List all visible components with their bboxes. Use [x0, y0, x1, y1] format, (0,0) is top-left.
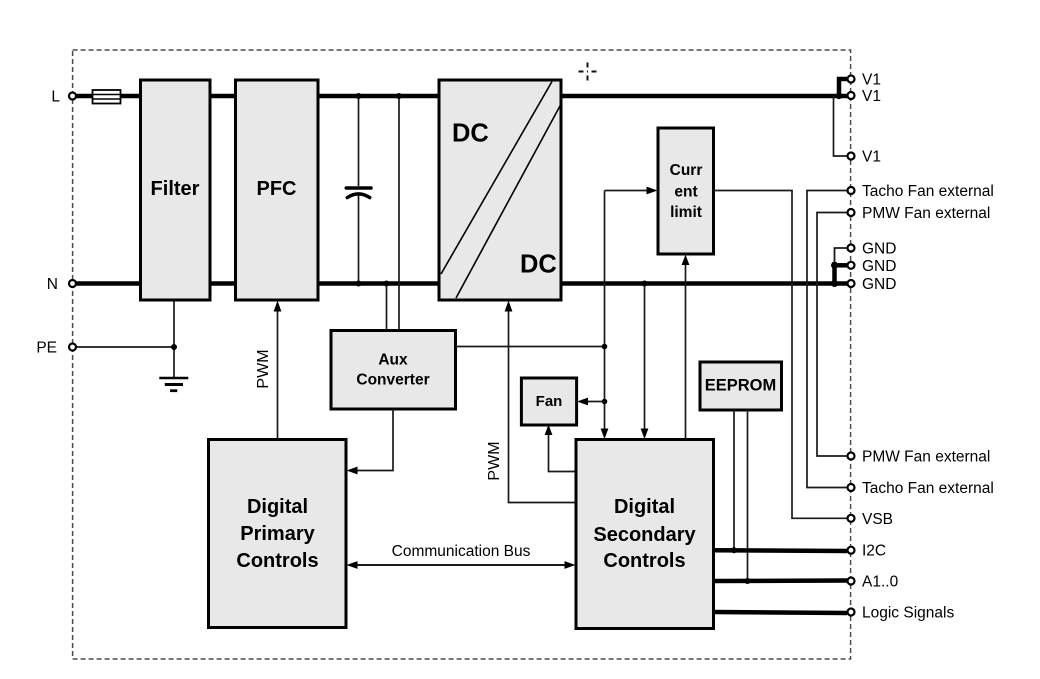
svg-text:Curr: Curr: [670, 162, 703, 179]
svg-text:Digital: Digital: [247, 496, 308, 518]
svg-text:V1: V1: [862, 88, 881, 105]
svg-text:Fan: Fan: [536, 393, 563, 410]
svg-text:Logic Signals: Logic Signals: [862, 605, 954, 622]
svg-text:EEPROM: EEPROM: [705, 377, 777, 395]
svg-text:GND: GND: [862, 241, 896, 258]
svg-text:Converter: Converter: [356, 372, 429, 389]
svg-text:Filter: Filter: [151, 178, 200, 200]
svg-text:L: L: [51, 89, 60, 106]
svg-text:GND: GND: [862, 258, 896, 275]
svg-text:VSB: VSB: [862, 511, 893, 528]
svg-text:Controls: Controls: [603, 550, 685, 572]
svg-text:PWM: PWM: [486, 441, 503, 480]
svg-text:Digital: Digital: [614, 496, 675, 518]
svg-text:Communication Bus: Communication Bus: [392, 543, 531, 560]
svg-text:PWM: PWM: [255, 349, 272, 388]
svg-text:PFC: PFC: [257, 178, 297, 200]
svg-text:PMW Fan external: PMW Fan external: [862, 449, 990, 466]
svg-text:V1: V1: [862, 72, 881, 89]
svg-text:A1..0: A1..0: [862, 574, 899, 591]
svg-text:Primary: Primary: [240, 523, 315, 545]
svg-text:Aux: Aux: [378, 352, 408, 369]
svg-text:ent: ent: [674, 184, 697, 201]
svg-text:Tacho Fan external: Tacho Fan external: [862, 480, 994, 497]
svg-text:V1: V1: [862, 149, 881, 166]
svg-text:DC: DC: [452, 120, 489, 148]
svg-text:Controls: Controls: [236, 550, 318, 572]
svg-text:Secondary: Secondary: [593, 524, 696, 546]
svg-text:limit: limit: [670, 204, 702, 221]
svg-text:Tacho Fan external: Tacho Fan external: [862, 183, 994, 200]
svg-text:N: N: [47, 276, 58, 293]
svg-text:PE: PE: [36, 340, 57, 357]
svg-text:DC: DC: [520, 251, 557, 279]
svg-text:GND: GND: [862, 276, 896, 293]
svg-text:I2C: I2C: [862, 543, 886, 560]
svg-text:PMW Fan external: PMW Fan external: [862, 205, 990, 222]
